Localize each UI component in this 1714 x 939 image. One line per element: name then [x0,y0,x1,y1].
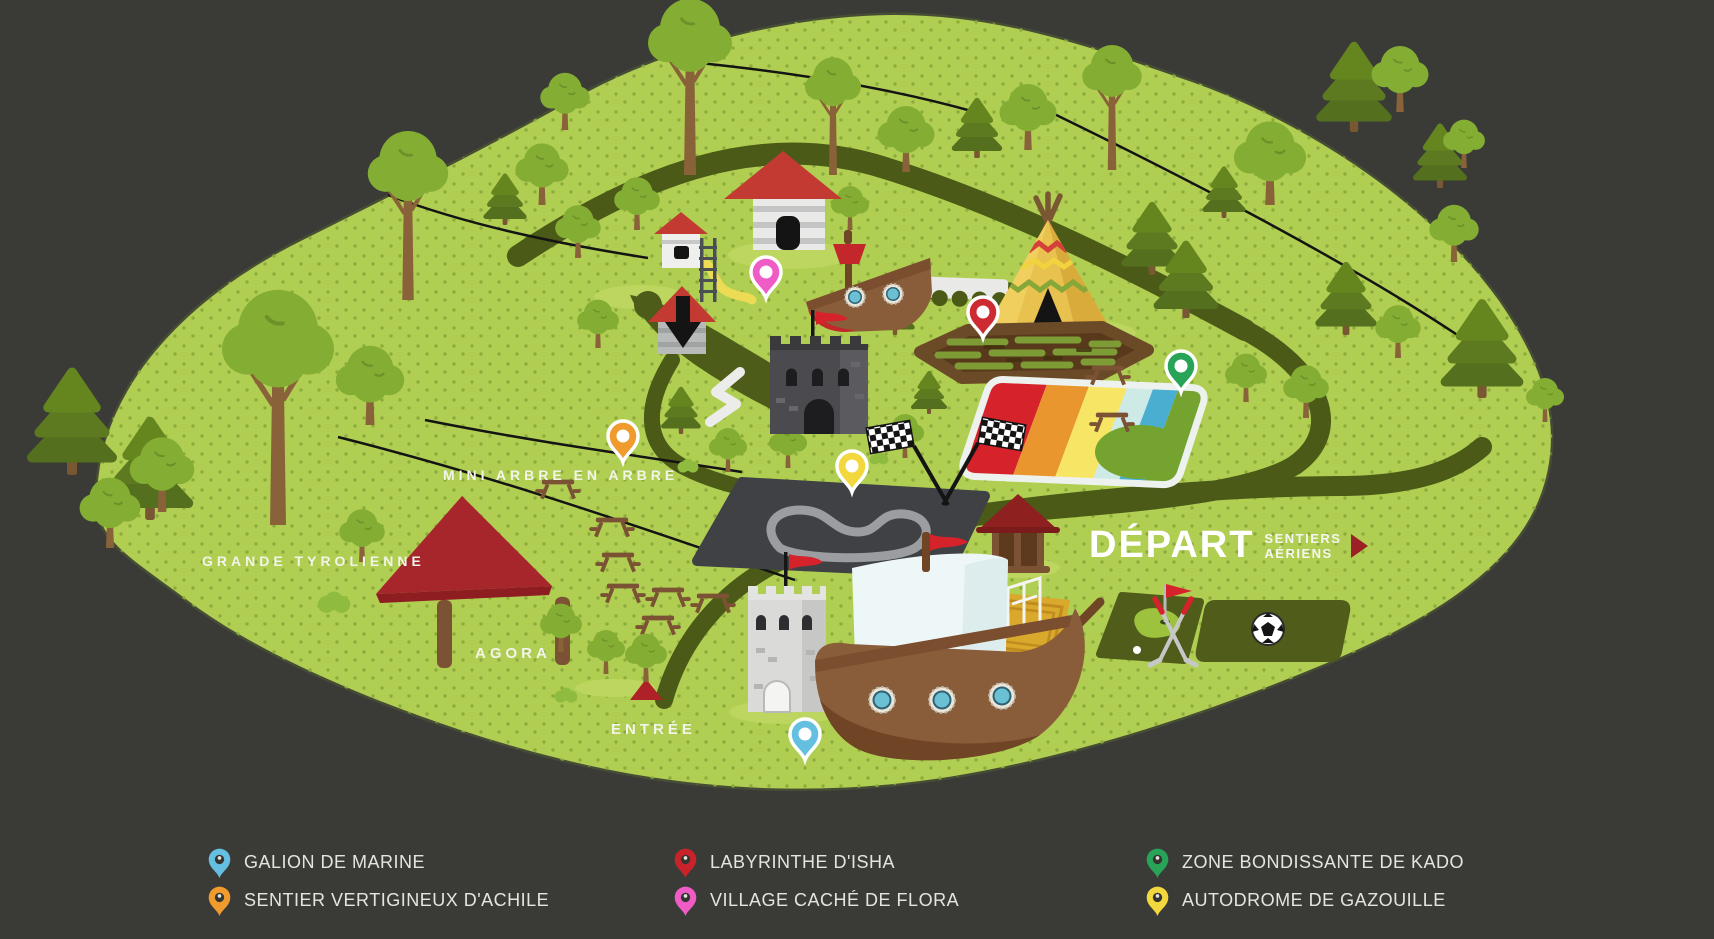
depart-arrow-icon [1351,534,1368,558]
legend-label: SENTIER VERTIGINEUX D'ACHILE [244,890,549,911]
depart-line2: AÉRIENS [1264,546,1332,561]
map-pin-icon [674,885,697,917]
legend-label: LABYRINTHE D'ISHA [710,852,895,873]
ladder [699,238,717,302]
legend-item-autodrome: AUTODROME DE GAZOUILLE [1146,884,1446,917]
porthole-icon [869,687,895,713]
porthole-icon [883,284,903,304]
legend-label: VILLAGE CACHÉ DE FLORA [710,890,959,911]
legend-label: ZONE BONDISSANTE DE KADO [1182,852,1464,873]
map-pin-icon [208,885,231,917]
depart-line1: SENTIERS [1264,531,1341,546]
porthole-icon [929,687,955,713]
legend-label: AUTODROME DE GAZOUILLE [1182,890,1446,911]
legend-item-labyrinthe: LABYRINTHE D'ISHA [674,846,895,879]
legend-item-village: VILLAGE CACHÉ DE FLORA [674,884,959,917]
map-pin-icon [674,847,697,879]
label-agora: AGORA [475,645,551,662]
label-mini-arbre-en-arbre: MINI ARBRE EN ARBRE [443,467,678,483]
porthole-icon [989,683,1015,709]
park-map: GRANDE TYROLIENNE MINI ARBRE EN ARBRE AG… [0,0,1714,939]
park-map-illustration [0,0,1714,939]
legend-item-galion: GALION DE MARINE [208,846,425,879]
porthole-icon [845,287,865,307]
soccer-field [1196,600,1351,662]
depart-subtitle: SENTIERS AÉRIENS [1264,531,1341,561]
legend-item-sentier: SENTIER VERTIGINEUX D'ACHILE [208,884,549,917]
soccer-ball-icon [1252,613,1284,645]
depart-title: DÉPART [1089,524,1254,567]
legend-label: GALION DE MARINE [244,852,425,873]
label-entree: ENTRÉE [611,721,696,738]
map-pin-icon [208,847,231,879]
legend-item-zone: ZONE BONDISSANTE DE KADO [1146,846,1464,879]
map-pin-icon [1146,847,1169,879]
label-grande-tyrolienne: GRANDE TYROLIENNE [202,553,425,569]
map-pin-icon [1146,885,1169,917]
depart-block: DÉPART SENTIERS AÉRIENS [1089,524,1368,567]
